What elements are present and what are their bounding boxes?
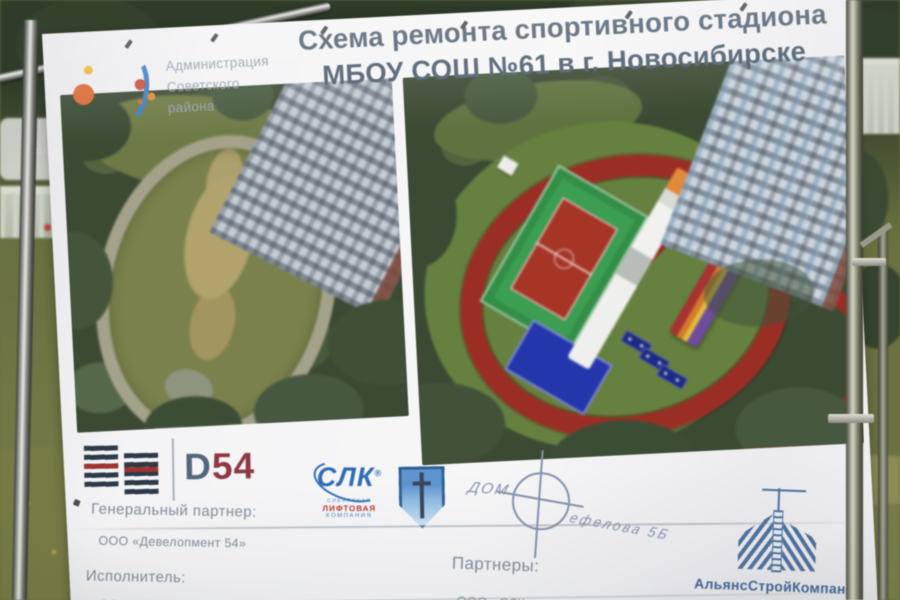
building-crane-icon [729,499,832,577]
logo-dot-icon [147,92,155,100]
slk-sub2: ЛИФТОВАЯ [304,504,394,513]
d54-logo: D54 [84,437,285,504]
banner-tie [124,39,132,49]
slk-logo: СЛК® СИБИРСКАЯ ЛИФТОВАЯ КОМПАНИЯ [304,462,394,552]
general-partner-label: Генеральный партнер: [91,501,257,521]
partners-label: Партнеры: [452,553,540,576]
dom-prefix: ДОМ [466,479,511,499]
photo-before-renovation [60,78,409,432]
frame-clamp [828,414,874,423]
photo-scene: Администрация Советского района Схема ре… [0,0,900,600]
banner: Администрация Советского района Схема ре… [42,0,879,600]
logo-arc-icon [107,54,153,126]
banner-tie [210,33,218,43]
logo-dot-icon [84,65,93,74]
d54-stripes-icon [84,445,163,496]
administration-logo: Администрация Советского района [63,48,281,131]
frame-pole-right [846,0,863,600]
banner-footer: D54 Генеральный партнер: ООО «Девелопмен… [62,398,879,600]
crest-shield-icon [398,466,445,529]
administration-logo-text: Администрация Советского района [165,52,271,120]
admin-line3: района [167,93,271,119]
d54-wordmark: D54 [184,445,256,488]
frame-clamp [852,258,886,266]
banner-tie [73,499,81,507]
tree-canopy-overlay [60,78,409,432]
general-partner-name: ООО «Девелопмент 54» [98,534,246,551]
alyans-stroy-name: АльянсСтройКомпания [653,574,900,599]
sword-icon [420,472,425,518]
slk-wordmark: СЛК® [304,462,394,493]
partners-name: ООО «СЛК» [456,594,533,600]
red-flower-dot [44,224,51,231]
slk-sub3: КОМПАНИЯ [304,513,394,519]
frame-pole-right-2 [878,228,888,600]
logo-dot-icon [73,83,95,105]
sword-guard-icon [413,481,431,485]
executor-label: Исполнитель: [86,567,186,586]
d54-divider [172,439,175,501]
